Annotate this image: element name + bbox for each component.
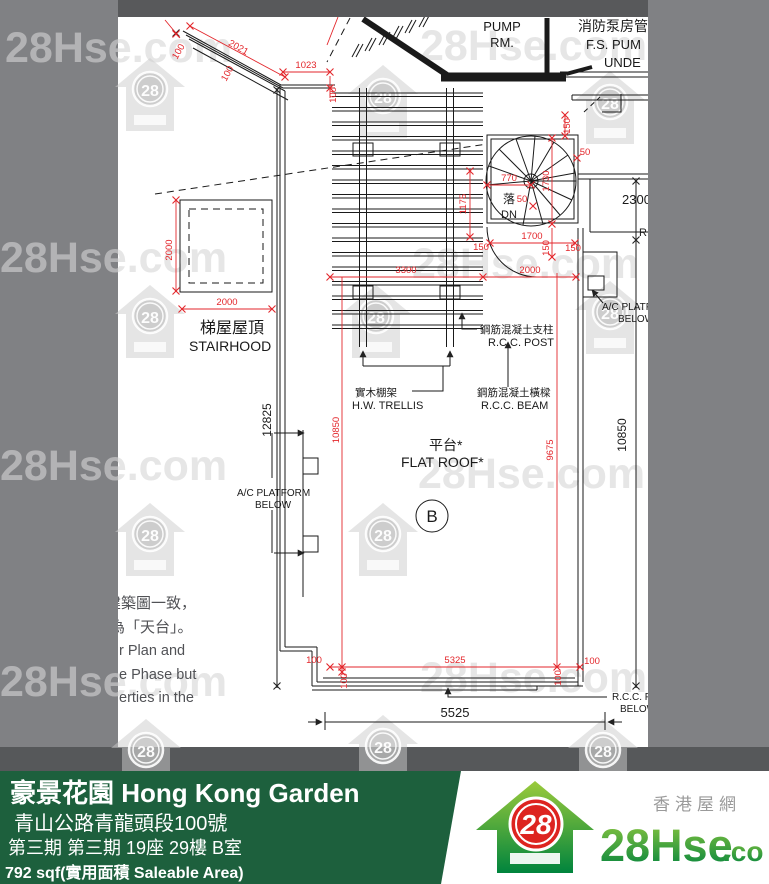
dim-12825: 12825	[260, 403, 274, 437]
note-line-2: 為「天台」。	[118, 619, 193, 636]
ac-platform-left-line2: BELOW	[255, 500, 292, 511]
dim-3300: 3300	[395, 265, 416, 276]
dim-1700: 1700	[521, 231, 542, 242]
note-line-5: erties in the	[119, 690, 194, 706]
dim-2021: 2021	[226, 38, 250, 58]
dim-100-bl-rotated: 100	[339, 673, 350, 689]
dim-770: 770	[501, 173, 517, 184]
dim-100-bottomleft: 100	[306, 655, 322, 666]
ac-platform-right-line1: A/C PLATF	[602, 302, 648, 313]
rcc-post-label-en: R.C.C. POST	[488, 337, 554, 349]
rcc-fin-label-line2: BELOW	[620, 704, 648, 715]
ac-platform-right-line2: BELOW	[618, 314, 648, 325]
note-line-4: e Phase but	[119, 667, 196, 683]
unit-info: 第三期 第三期 19座 29樓 B室	[8, 834, 242, 860]
rcc-post-label-zh: 鋼筋混凝土支柱	[480, 323, 554, 336]
brand-house-icon: 28	[476, 781, 594, 873]
plan-notes: 建築圖一致， 為「天台」。 r Plan and e Phase but ert…	[118, 594, 196, 706]
dim-1023: 1023	[295, 60, 316, 71]
dim-100-right: 100	[328, 87, 339, 103]
trellis-label-zh: 實木棚架	[355, 386, 397, 399]
flat-roof-label-zh: 平台*	[429, 437, 463, 453]
floorplan-drawing: 100 2021 100 1023 100 150 50 770 1730 11…	[118, 17, 648, 747]
footer-bar: 豪景花園 Hong Kong Garden 青山公路青龍頭段100號 第三期 第…	[0, 771, 769, 884]
unit-letter: B	[426, 507, 437, 526]
dim-100-diagonal: 100	[219, 64, 236, 83]
fs-pump-label-en1: F.S. PUM	[586, 37, 641, 52]
dim-10850-black: 10850	[615, 418, 629, 452]
dim-2000-stairhood-h: 2000	[216, 297, 237, 308]
ac-platform-left-line1: A/C PLATFORM	[237, 488, 310, 499]
dim-100-bottomright: 100	[584, 656, 600, 667]
dim-100-topleft: 100	[170, 42, 187, 61]
dim-1175: 1175	[458, 194, 469, 214]
dim-2000-stair: 2000	[519, 265, 540, 276]
note-line-1: 建築圖一致，	[118, 594, 196, 612]
rc-label: R.C.	[639, 227, 648, 239]
area-info: 792 sqf(實用面積 Saleable Area)	[5, 859, 244, 883]
dim-150-c: 150	[565, 243, 581, 254]
dim-50-center: 50	[517, 194, 528, 205]
stairhood-label-zh: 梯屋屋頂	[200, 319, 264, 337]
pump-room-label-line2: RM.	[490, 35, 514, 50]
stair-down-zh: 落	[503, 192, 515, 206]
dim-9675: 9675	[545, 439, 556, 460]
trellis-label-en: H.W. TRELLIS	[352, 400, 423, 412]
rcc-beam-label-en: R.C.C. BEAM	[481, 400, 548, 412]
dim-150-a: 150	[473, 242, 489, 253]
rcc-beam-label-zh: 鋼筋混凝土橫樑	[477, 386, 551, 399]
dim-100-br-rotated: 100	[553, 670, 564, 686]
dim-5325: 5325	[444, 655, 465, 666]
black-dimension-lines	[277, 88, 636, 730]
top-frame-strip	[118, 0, 648, 17]
spiral-staircase	[486, 136, 576, 226]
brand-name-main: 28Hse	[600, 820, 733, 871]
estate-title: 豪景花園 Hong Kong Garden	[10, 773, 360, 810]
dim-150-b: 150	[541, 240, 552, 256]
flat-roof-label-en: FLAT ROOF*	[401, 454, 484, 470]
bottom-frame-strip	[0, 747, 769, 771]
brand-name-suffix: .com	[723, 836, 765, 867]
fs-pump-label-zh: 消防泵房管	[578, 18, 648, 34]
rcc-fin-label-line1: R.C.C. F	[612, 692, 648, 703]
brand-tagline-zh: 香港屋網	[653, 795, 741, 814]
dim-50-right: 50	[580, 147, 591, 158]
estate-address: 青山公路青龍頭段100號	[14, 807, 227, 836]
floorplan-screenshot: 28 28Hse.com 28Hse.com 28Hse.com 28Hse.c…	[0, 0, 769, 884]
fs-pump-label-en2: UNDE	[604, 55, 641, 70]
brand-badge-number: 28	[519, 809, 552, 840]
stairhood-label-en: STAIRHOOD	[189, 338, 271, 354]
dim-2000-stairhood-v: 2000	[164, 239, 175, 260]
dim-10850-red: 10850	[331, 417, 342, 443]
dim-2300: 2300	[622, 192, 648, 207]
pump-room-label-line1: PUMP	[483, 19, 521, 34]
dim-1730: 1730	[541, 170, 552, 191]
brand-logo: 28 香港屋網 28Hse .com	[470, 777, 765, 881]
dim-150-stairtop: 150	[562, 118, 573, 134]
note-line-3: r Plan and	[119, 643, 185, 659]
stair-down-en: DN	[501, 209, 517, 221]
dim-5525: 5525	[441, 705, 470, 720]
